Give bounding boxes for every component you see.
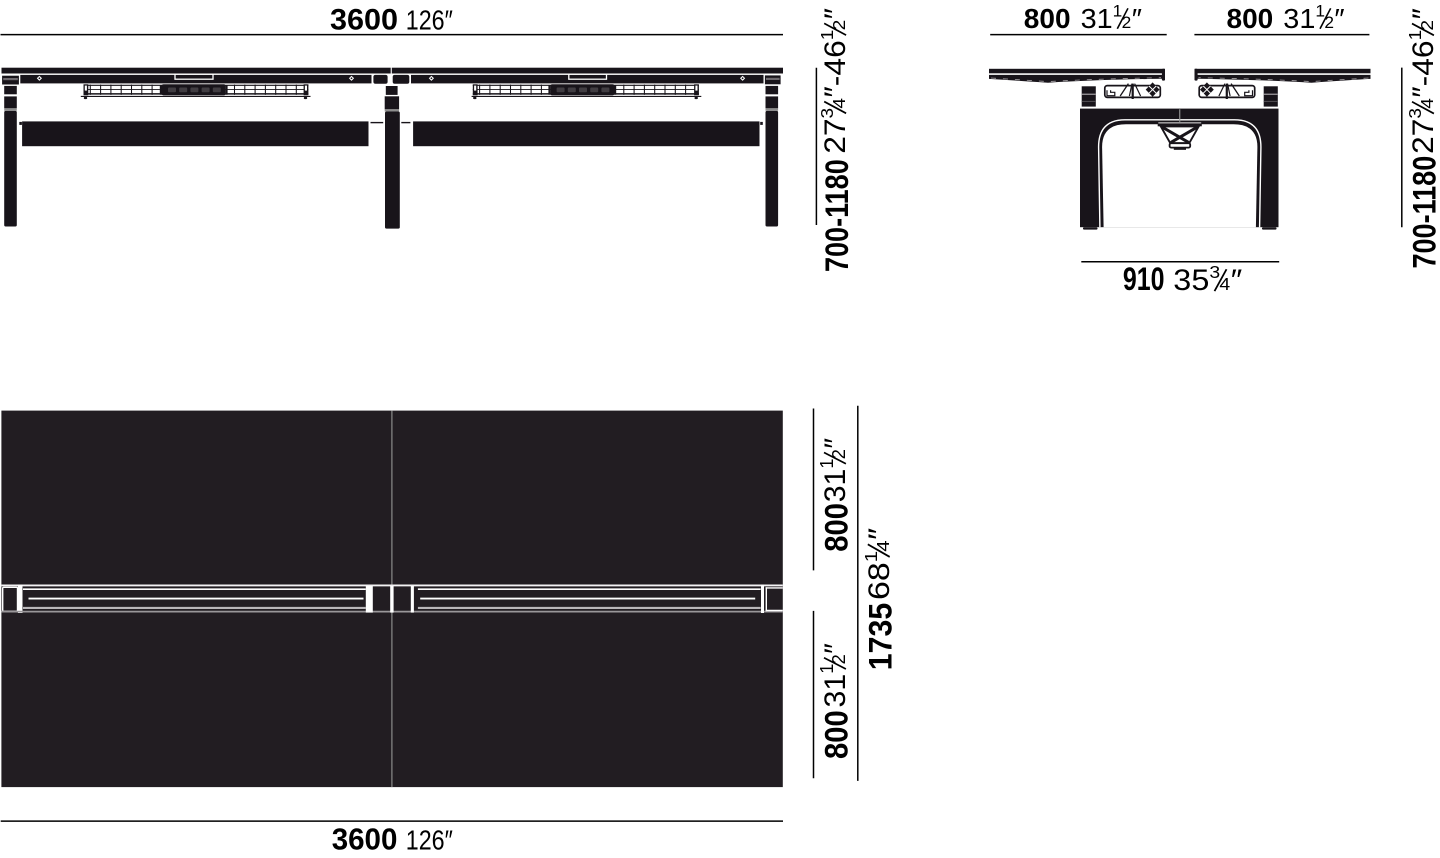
svg-text:35: 35 — [1173, 263, 1209, 297]
svg-text:″: ″ — [862, 528, 896, 540]
svg-text:700-1180: 700-1180 — [1408, 156, 1440, 269]
svg-text:800: 800 — [819, 710, 855, 759]
svg-text:31: 31 — [1081, 3, 1113, 35]
svg-text:3600: 3600 — [332, 823, 398, 857]
svg-text:″: ″ — [819, 438, 852, 449]
svg-text:3: 3 — [817, 108, 837, 119]
svg-text:″: ″ — [1406, 8, 1440, 19]
svg-text:126: 126 — [406, 826, 445, 856]
svg-text:″: ″ — [818, 8, 852, 19]
svg-text:31: 31 — [1283, 3, 1315, 35]
svg-text:4: 4 — [1417, 98, 1437, 109]
svg-text:3600: 3600 — [330, 4, 398, 37]
svg-text:2: 2 — [1122, 13, 1132, 32]
svg-text:1: 1 — [862, 551, 882, 562]
svg-text:2: 2 — [829, 654, 849, 664]
svg-text:″: ″ — [1334, 3, 1344, 35]
svg-text:800: 800 — [1024, 3, 1071, 34]
svg-text:1: 1 — [1405, 30, 1425, 41]
svg-text:910: 910 — [1123, 262, 1165, 298]
svg-text:2: 2 — [829, 20, 849, 31]
svg-text:700-1180: 700-1180 — [820, 159, 856, 272]
svg-text:″: ″ — [819, 643, 852, 654]
svg-text:″: ″ — [1231, 263, 1242, 297]
svg-text:2: 2 — [829, 449, 849, 459]
svg-text:1: 1 — [817, 458, 837, 468]
svg-text:4: 4 — [874, 540, 894, 552]
svg-text:2: 2 — [1324, 13, 1334, 32]
svg-text:″: ″ — [445, 826, 453, 856]
svg-text:126: 126 — [406, 6, 445, 36]
svg-text:3: 3 — [1405, 108, 1425, 119]
svg-text:″: ″ — [818, 86, 852, 97]
svg-text:1: 1 — [817, 30, 837, 41]
svg-text:31: 31 — [819, 674, 852, 708]
svg-text:4: 4 — [829, 98, 849, 109]
svg-text:1735: 1735 — [863, 603, 899, 670]
svg-text:800: 800 — [819, 503, 855, 552]
svg-text:″: ″ — [1132, 3, 1142, 35]
svg-text:27: 27 — [818, 118, 852, 153]
svg-text:1: 1 — [817, 664, 837, 674]
svg-text:4: 4 — [1219, 274, 1230, 294]
svg-text:2: 2 — [1417, 20, 1437, 31]
svg-text:-46: -46 — [1406, 40, 1440, 86]
svg-text:-46: -46 — [818, 40, 852, 86]
svg-text:″: ″ — [445, 6, 453, 36]
svg-text:800: 800 — [1227, 3, 1274, 34]
svg-text:68: 68 — [862, 562, 896, 600]
svg-text:31: 31 — [819, 469, 852, 503]
svg-text:″: ″ — [1406, 86, 1440, 97]
svg-text:27: 27 — [1406, 119, 1440, 154]
